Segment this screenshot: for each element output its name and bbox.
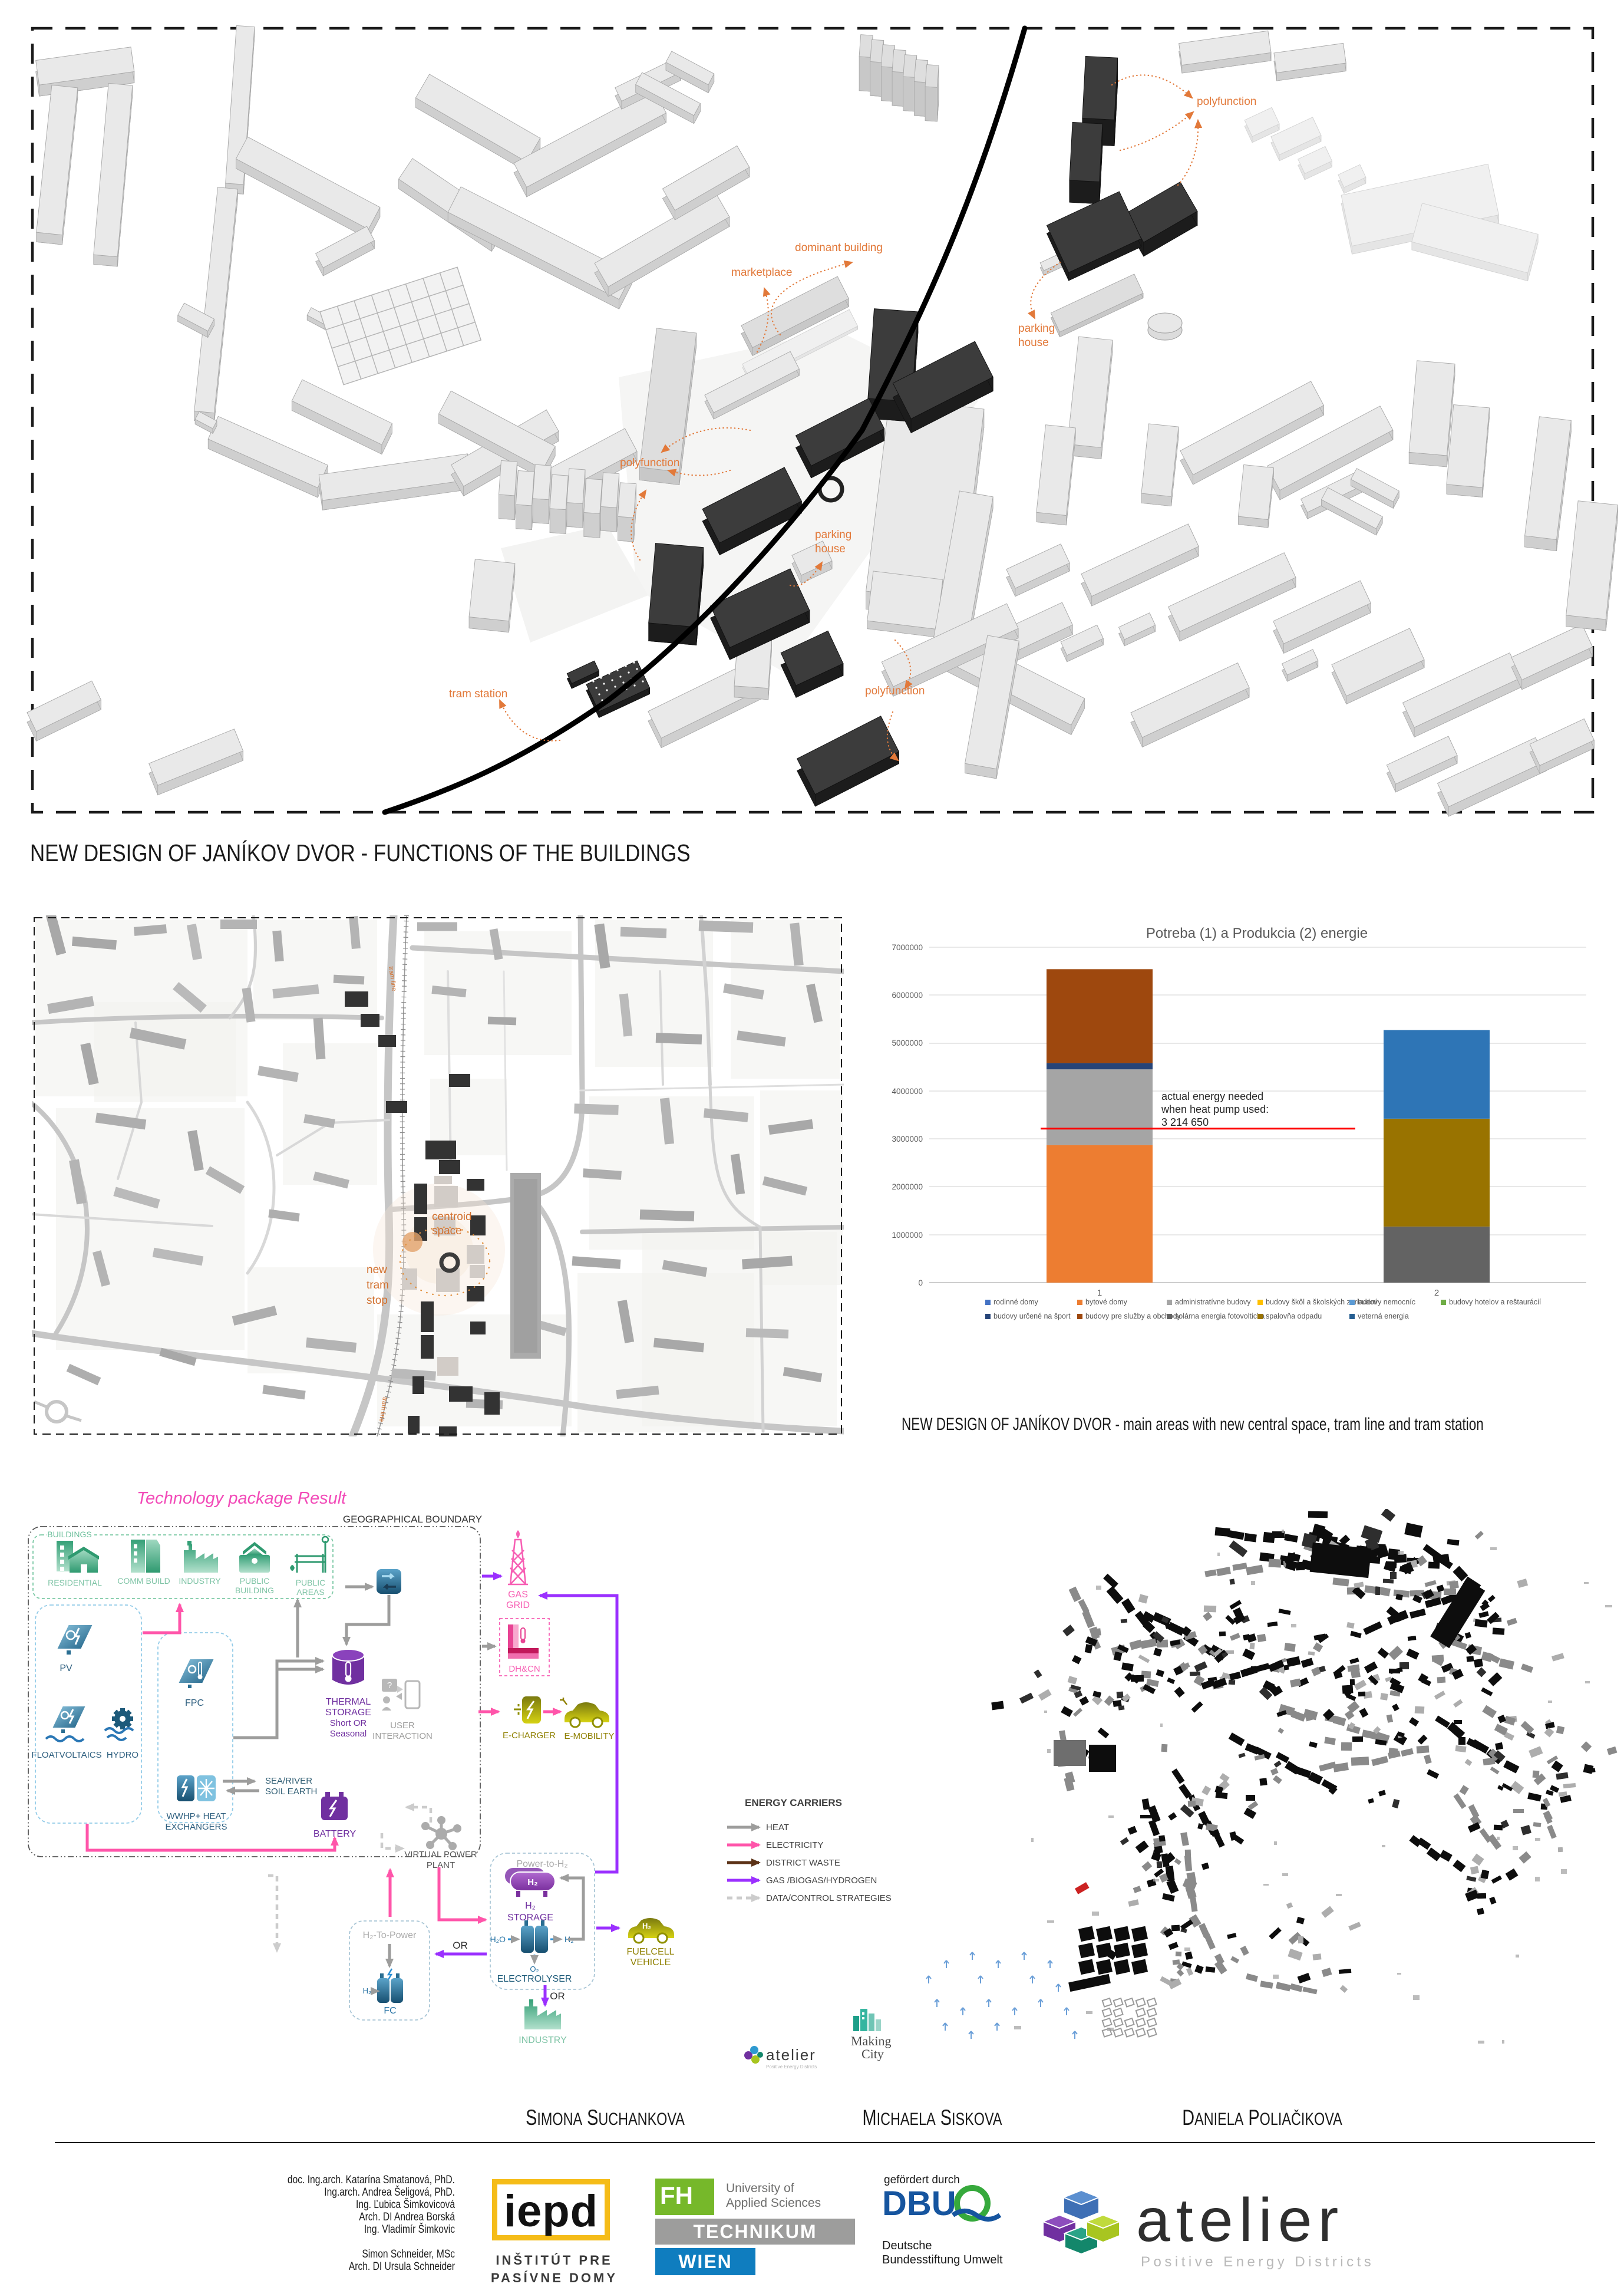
svg-text:5000000: 5000000 bbox=[892, 1039, 923, 1047]
svg-text:rodinné domy: rodinné domy bbox=[993, 1298, 1038, 1306]
svg-text:parking: parking bbox=[815, 529, 851, 541]
svg-text:SEA/RIVER: SEA/RIVER bbox=[265, 1776, 312, 1786]
svg-text:GRID: GRID bbox=[506, 1600, 530, 1610]
svg-text:spalovňa odpadu: spalovňa odpadu bbox=[1266, 1312, 1322, 1320]
svg-text:H₂-To-Power: H₂-To-Power bbox=[363, 1930, 417, 1940]
svg-text:INDUSTRY: INDUSTRY bbox=[179, 1576, 221, 1586]
svg-text:budovy hotelov a reštaurácií: budovy hotelov a reštaurácií bbox=[1449, 1298, 1542, 1306]
svg-text:polyfunction: polyfunction bbox=[1197, 95, 1256, 108]
svg-text:AREAS: AREAS bbox=[296, 1587, 324, 1597]
svg-text:administratívne budovy: administratívne budovy bbox=[1175, 1298, 1251, 1306]
svg-text:H₂: H₂ bbox=[642, 1922, 651, 1930]
svg-text:WWHP+ HEAT: WWHP+ HEAT bbox=[167, 1811, 226, 1821]
svg-text:RESIDENTIAL: RESIDENTIAL bbox=[48, 1578, 102, 1587]
svg-text:space: space bbox=[432, 1225, 462, 1237]
svg-text:tram station: tram station bbox=[449, 688, 507, 700]
svg-text:marketplace: marketplace bbox=[731, 266, 793, 279]
svg-text:HYDRO: HYDRO bbox=[107, 1750, 138, 1760]
svg-text:stop: stop bbox=[367, 1294, 388, 1307]
svg-text:Technology package Result: Technology package Result bbox=[137, 1489, 347, 1508]
svg-text:FC: FC bbox=[384, 2006, 396, 2016]
svg-text:COMM BUILD: COMM BUILD bbox=[117, 1576, 170, 1586]
svg-text:THERMAL: THERMAL bbox=[326, 1697, 371, 1707]
svg-text:tram: tram bbox=[367, 1279, 389, 1291]
svg-text:BUILDING: BUILDING bbox=[235, 1586, 274, 1595]
svg-text:BUILDINGS: BUILDINGS bbox=[47, 1530, 91, 1539]
svg-text:6000000: 6000000 bbox=[892, 991, 923, 1000]
svg-text:7000000: 7000000 bbox=[892, 943, 923, 952]
svg-text:polyfunction: polyfunction bbox=[865, 685, 925, 697]
svg-text:FUELCELL: FUELCELL bbox=[627, 1947, 675, 1957]
svg-text:actual energy needed: actual energy needed bbox=[1161, 1090, 1263, 1102]
svg-text:GAS: GAS bbox=[508, 1590, 528, 1600]
svg-text:O₂: O₂ bbox=[530, 1965, 539, 1973]
svg-text:dominant building: dominant building bbox=[795, 242, 883, 254]
svg-text:H₂O: H₂O bbox=[490, 1935, 506, 1944]
svg-text:FLOATVOLTAICS: FLOATVOLTAICS bbox=[31, 1750, 101, 1760]
svg-text:1: 1 bbox=[1097, 1288, 1102, 1298]
svg-text:HEAT: HEAT bbox=[766, 1823, 789, 1833]
svg-text:DISTRICT WASTE: DISTRICT WASTE bbox=[766, 1858, 840, 1868]
svg-text:house: house bbox=[815, 543, 846, 555]
svg-text:atelier: atelier bbox=[766, 2046, 816, 2064]
svg-text:City: City bbox=[861, 2047, 884, 2061]
svg-text:Seasonal: Seasonal bbox=[330, 1729, 367, 1739]
svg-text:polyfunction: polyfunction bbox=[620, 457, 679, 469]
svg-text:DBU: DBU bbox=[882, 2184, 956, 2223]
svg-text:VEHICLE: VEHICLE bbox=[631, 1958, 671, 1968]
svg-text:veterná energia: veterná energia bbox=[1358, 1312, 1409, 1320]
svg-text:budovy nemocníc: budovy nemocníc bbox=[1358, 1298, 1415, 1306]
svg-text:E-CHARGER: E-CHARGER bbox=[503, 1731, 556, 1741]
svg-text:2: 2 bbox=[1434, 1288, 1439, 1298]
svg-text:Bundesstiftung Umwelt: Bundesstiftung Umwelt bbox=[882, 2253, 1003, 2266]
svg-text:1000000: 1000000 bbox=[892, 1231, 923, 1240]
svg-text:H₂: H₂ bbox=[525, 1901, 536, 1911]
svg-text:new: new bbox=[367, 1264, 387, 1276]
svg-text:INTERACTION: INTERACTION bbox=[372, 1731, 433, 1741]
svg-text:GEOGRAPHICAL BOUNDARY: GEOGRAPHICAL BOUNDARY bbox=[343, 1514, 482, 1525]
svg-text:3000000: 3000000 bbox=[892, 1135, 923, 1143]
svg-text:BATTERY: BATTERY bbox=[313, 1829, 357, 1839]
svg-text:ELECTRICITY: ELECTRICITY bbox=[766, 1840, 824, 1850]
svg-text:Deutsche: Deutsche bbox=[882, 2239, 932, 2252]
svg-text:EXCHANGERS: EXCHANGERS bbox=[165, 1822, 227, 1832]
svg-text:budovy určené na šport: budovy určené na šport bbox=[993, 1312, 1071, 1320]
svg-text:ELECTROLYSER: ELECTROLYSER bbox=[497, 1974, 572, 1984]
svg-text:INDUSTRY: INDUSTRY bbox=[519, 2035, 567, 2045]
svg-text:GAS /BIOGAS/HYDROGEN: GAS /BIOGAS/HYDROGEN bbox=[766, 1876, 877, 1886]
svg-text:Short OR: Short OR bbox=[330, 1718, 367, 1728]
svg-text:2000000: 2000000 bbox=[892, 1182, 923, 1191]
svg-text:house: house bbox=[1018, 337, 1049, 349]
svg-text:SOIL EARTH: SOIL EARTH bbox=[265, 1787, 317, 1797]
svg-text:?: ? bbox=[387, 1680, 392, 1690]
svg-text:STORAGE: STORAGE bbox=[507, 1913, 553, 1923]
svg-text:PV: PV bbox=[60, 1663, 72, 1673]
svg-text:3 214 650: 3 214 650 bbox=[1161, 1116, 1209, 1128]
svg-text:H₂: H₂ bbox=[527, 1877, 538, 1887]
svg-text:DATA/CONTROL STRATEGIES: DATA/CONTROL STRATEGIES bbox=[766, 1893, 892, 1903]
svg-text:STORAGE: STORAGE bbox=[325, 1708, 371, 1718]
svg-text:ENERGY CARRIERS: ENERGY CARRIERS bbox=[745, 1797, 842, 1808]
svg-text:Potreba (1) a Produkcia (2) en: Potreba (1) a Produkcia (2) energie bbox=[1146, 925, 1368, 941]
svg-text:bytové domy: bytové domy bbox=[1085, 1298, 1128, 1306]
svg-text:OR: OR bbox=[550, 1991, 565, 2002]
svg-text:Positive Energy Districts: Positive Energy Districts bbox=[766, 2064, 817, 2069]
svg-text:DH&CN: DH&CN bbox=[509, 1664, 540, 1674]
svg-text:centroid: centroid bbox=[432, 1211, 472, 1223]
svg-text:FPC: FPC bbox=[185, 1698, 204, 1708]
svg-text:PUBLIC: PUBLIC bbox=[240, 1576, 270, 1586]
svg-text:E-MOBILITY: E-MOBILITY bbox=[564, 1731, 614, 1741]
svg-text:0: 0 bbox=[918, 1278, 923, 1287]
svg-text:4000000: 4000000 bbox=[892, 1087, 923, 1096]
svg-text:parking: parking bbox=[1018, 322, 1055, 335]
svg-text:solárna energia fotovolticka: solárna energia fotovolticka bbox=[1175, 1312, 1265, 1320]
svg-text:when heat pump used:: when heat pump used: bbox=[1161, 1103, 1269, 1115]
svg-text:USER: USER bbox=[390, 1721, 415, 1731]
svg-text:PLANT: PLANT bbox=[427, 1860, 455, 1870]
svg-text:VIRTUAL POWER: VIRTUAL POWER bbox=[404, 1850, 477, 1860]
svg-text:OR: OR bbox=[453, 1940, 468, 1951]
svg-text:PUBLIC: PUBLIC bbox=[296, 1578, 326, 1587]
svg-text:H₂: H₂ bbox=[363, 1986, 371, 1995]
